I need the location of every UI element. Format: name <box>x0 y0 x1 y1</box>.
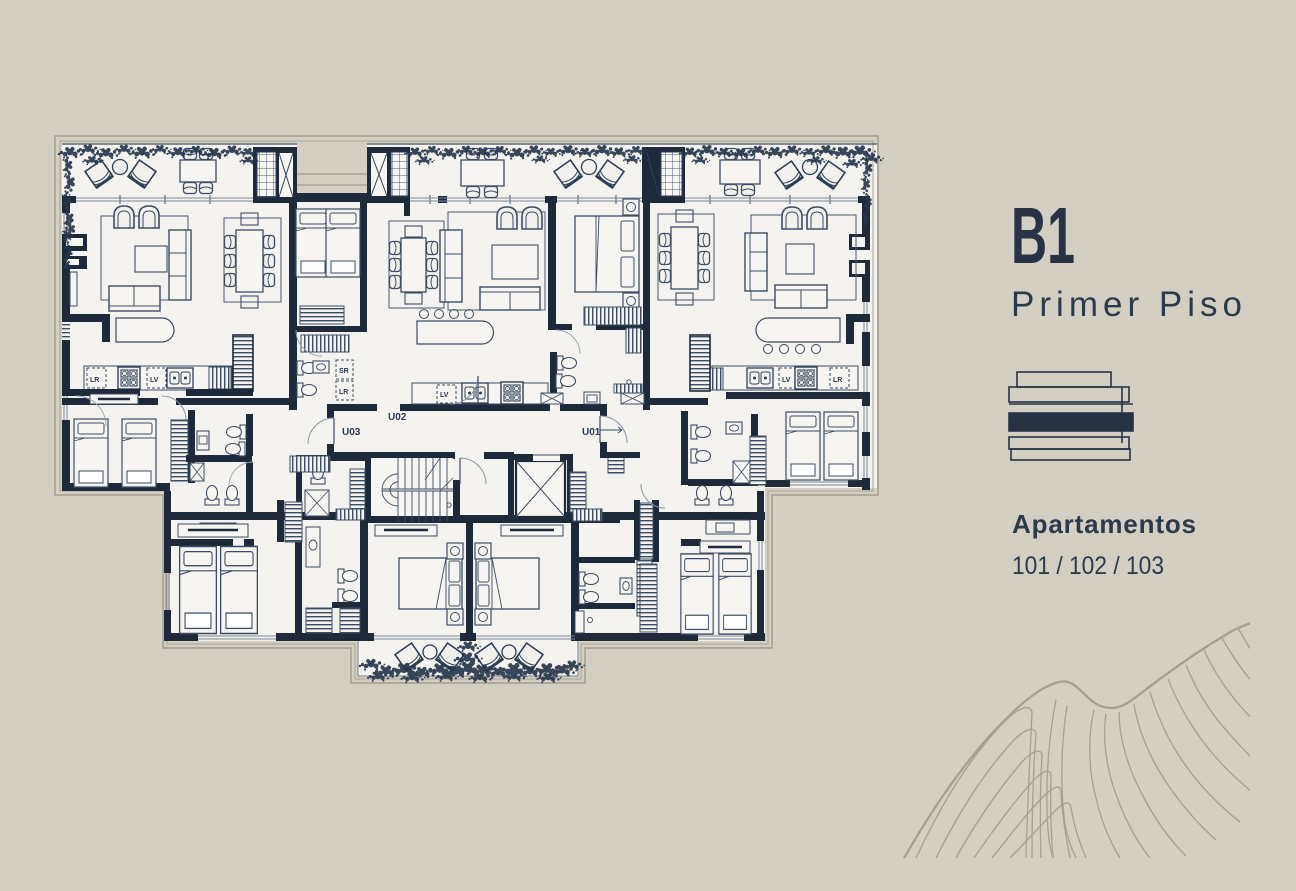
svg-text:SR: SR <box>339 368 349 375</box>
svg-text:Apartamentos: Apartamentos <box>1012 509 1196 539</box>
svg-text:U01: U01 <box>582 427 601 438</box>
svg-text:LR: LR <box>339 389 348 396</box>
svg-text:Primer Piso: Primer Piso <box>1011 285 1242 324</box>
svg-text:LR: LR <box>833 377 842 384</box>
svg-text:LV: LV <box>150 377 159 384</box>
svg-text:LV: LV <box>782 377 791 384</box>
svg-text:LR: LR <box>90 377 99 384</box>
svg-text:LV: LV <box>440 392 449 399</box>
svg-text:101 / 102 / 103: 101 / 102 / 103 <box>1012 552 1164 580</box>
svg-text:U02: U02 <box>388 412 407 423</box>
svg-text:B1: B1 <box>1011 191 1075 280</box>
svg-text:U03: U03 <box>342 427 361 438</box>
